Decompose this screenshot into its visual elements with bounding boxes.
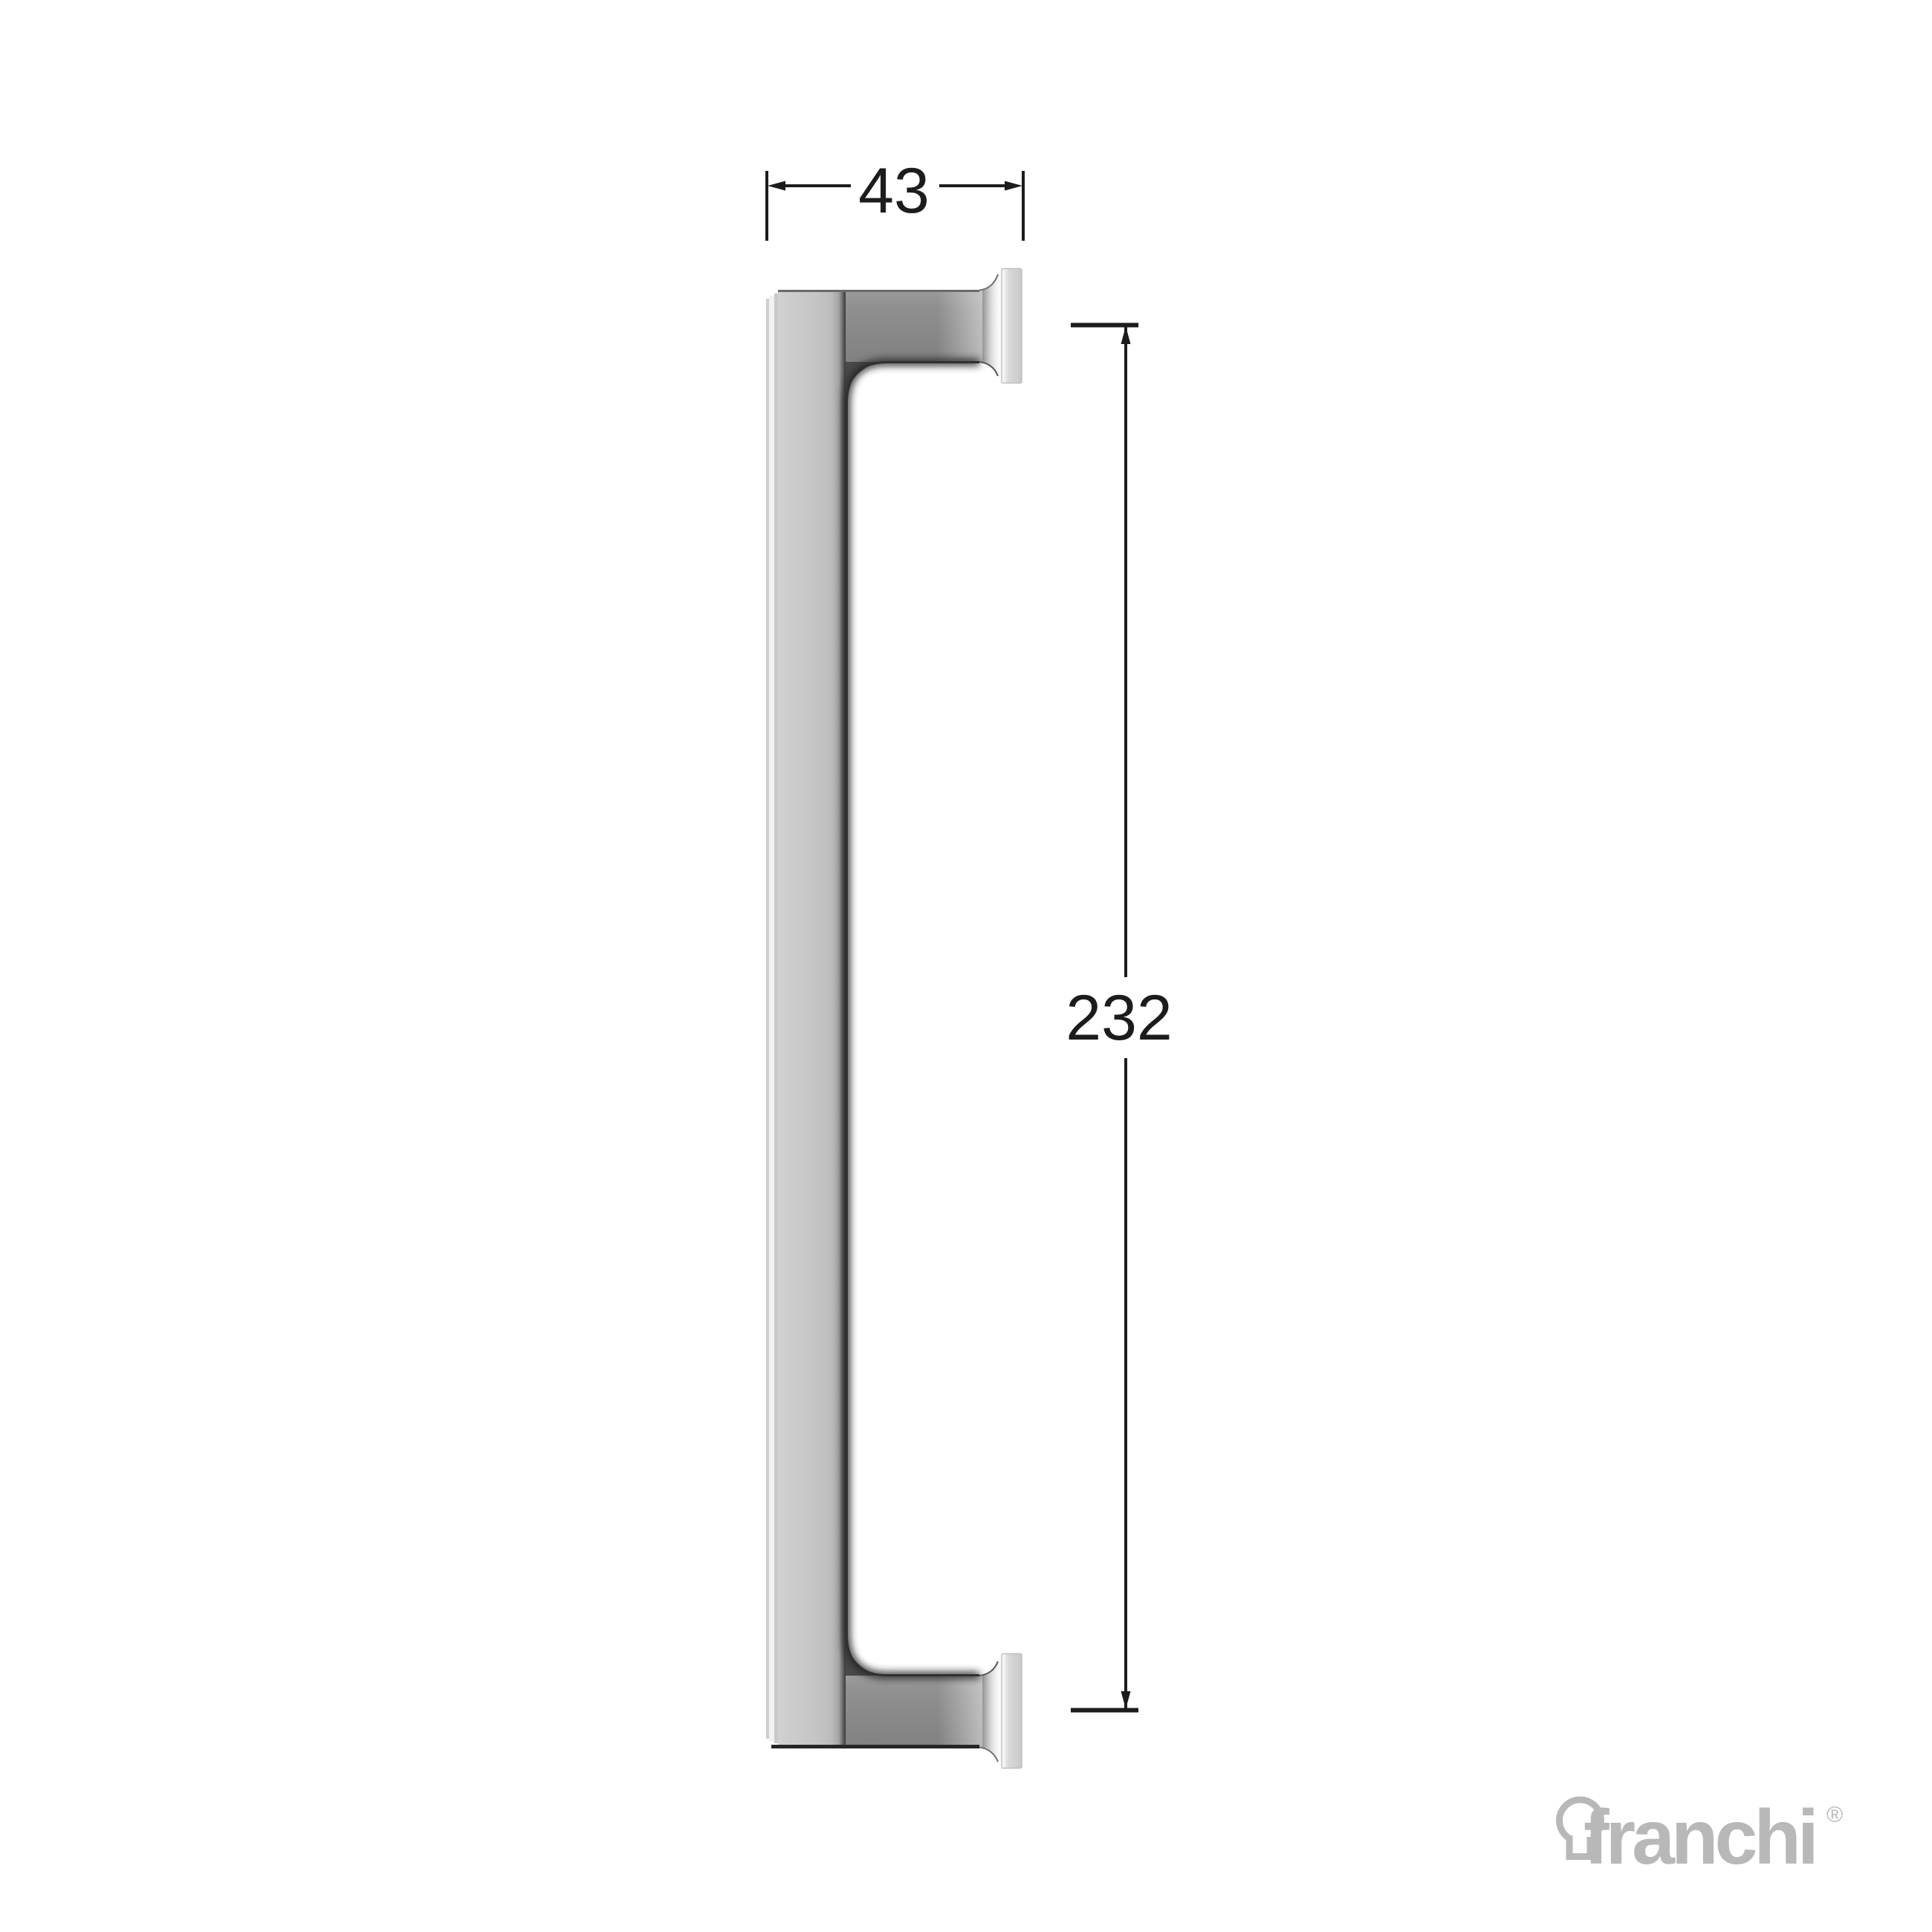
- top-flange: [1002, 269, 1022, 383]
- logo-text: franchi: [1583, 1795, 1815, 1881]
- registered-trademark: ®: [1826, 1803, 1843, 1827]
- arrowhead-right: [1005, 181, 1022, 191]
- handle-profile: [766, 269, 1022, 1769]
- inner-shadow: [847, 363, 980, 1676]
- inner-edge-line: [847, 363, 980, 1676]
- grip-bar: [778, 290, 846, 1748]
- width-dimension-label: 43: [858, 155, 930, 227]
- top-post-sheen: [938, 290, 982, 362]
- grip-edge-strip-highlight: [769, 296, 774, 1742]
- arrowhead-left: [768, 181, 785, 191]
- arrowhead-up: [1121, 326, 1131, 344]
- grip-edge-strip-inner: [774, 294, 778, 1743]
- bottom-flange: [1002, 1654, 1022, 1769]
- grip-edge-strip-outer: [766, 299, 769, 1739]
- height-dimension-label: 232: [1066, 982, 1173, 1054]
- bottom-post-sheen: [938, 1676, 982, 1748]
- width-dimension: 43: [767, 155, 1023, 241]
- franchi-logo: franchi ®: [1560, 1795, 1844, 1881]
- technical-drawing-canvas: 43 232 franchi ®: [0, 0, 1932, 1932]
- height-dimension: 232: [1066, 325, 1173, 1711]
- arrowhead-down: [1121, 1691, 1131, 1709]
- technical-drawing-page: 43 232 franchi ®: [0, 0, 1932, 1932]
